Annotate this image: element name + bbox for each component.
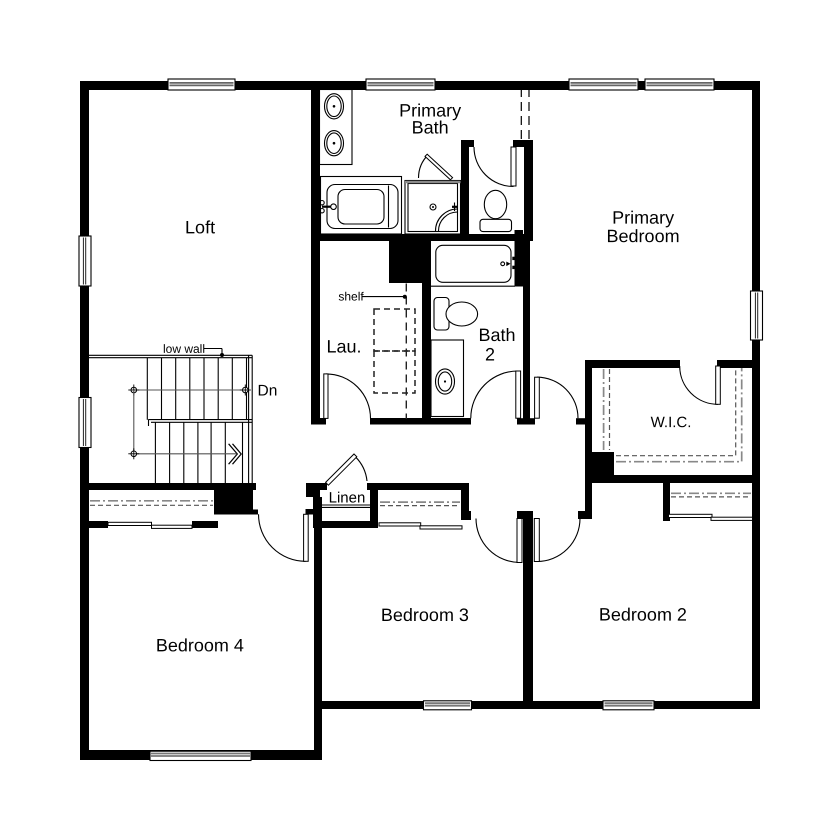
svg-text:2: 2 xyxy=(485,345,495,365)
svg-text:Primary: Primary xyxy=(612,208,674,228)
svg-text:Bedroom 4: Bedroom 4 xyxy=(156,635,244,655)
svg-text:Bedroom 2: Bedroom 2 xyxy=(599,605,687,625)
svg-text:Bath: Bath xyxy=(412,117,449,137)
svg-text:Bedroom 3: Bedroom 3 xyxy=(381,605,469,625)
svg-text:Lau.: Lau. xyxy=(326,336,361,356)
svg-text:Dn: Dn xyxy=(258,382,278,399)
svg-text:shelf: shelf xyxy=(338,289,364,303)
svg-text:Bath: Bath xyxy=(479,325,516,345)
svg-text:Loft: Loft xyxy=(185,217,215,237)
svg-text:Bedroom: Bedroom xyxy=(607,226,680,246)
svg-text:low wall: low wall xyxy=(163,342,205,356)
svg-text:W.I.C.: W.I.C. xyxy=(651,414,692,431)
svg-text:Linen: Linen xyxy=(329,489,366,506)
